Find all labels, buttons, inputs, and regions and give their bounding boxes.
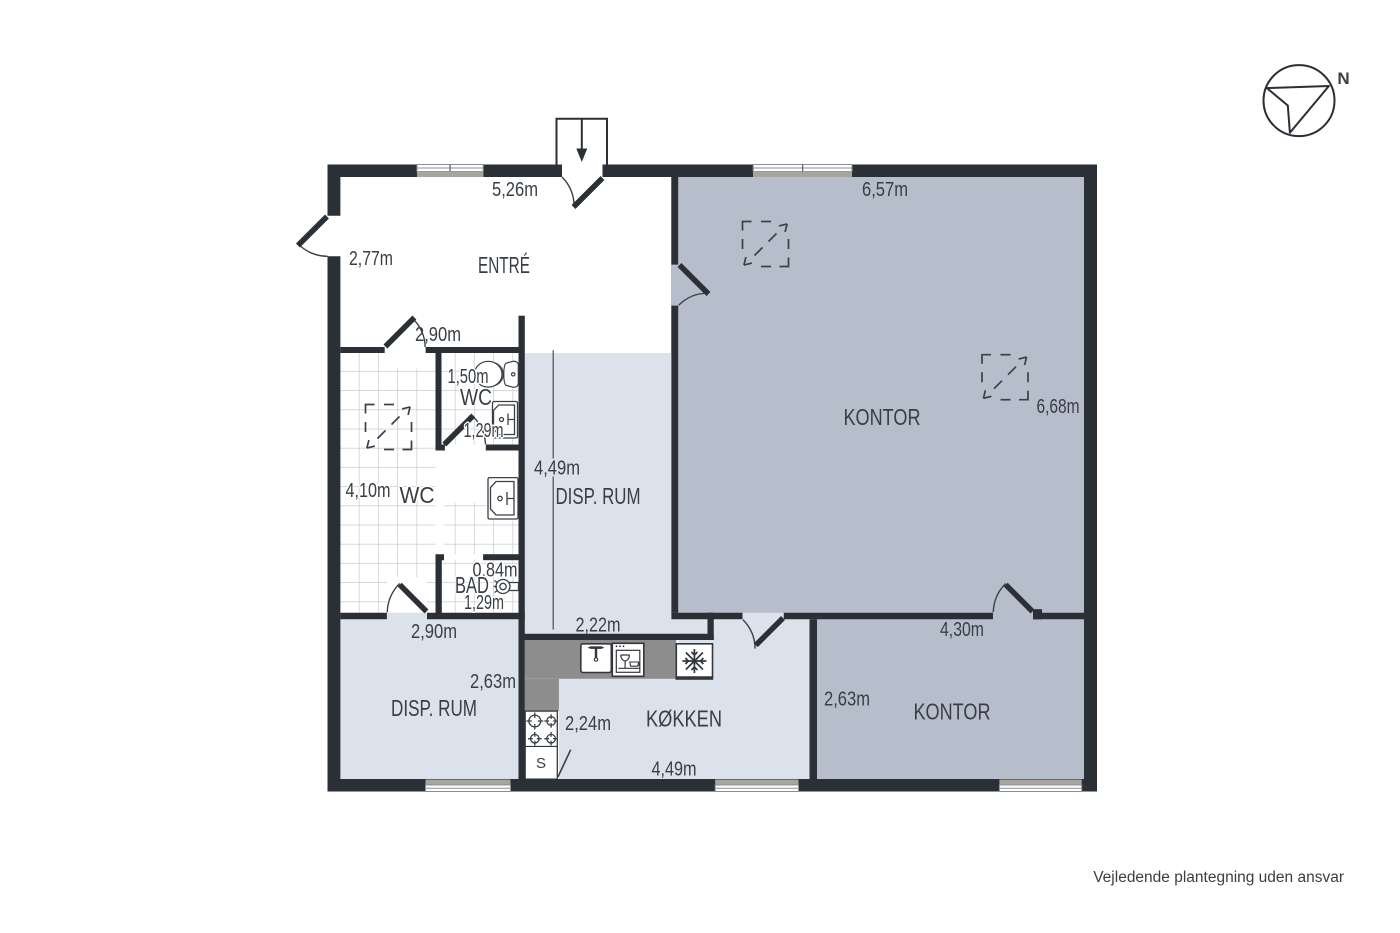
svg-text:2,22m: 2,22m	[576, 614, 621, 637]
svg-text:1,29m: 1,29m	[464, 419, 504, 442]
svg-text:6,68m: 6,68m	[1037, 395, 1080, 418]
svg-text:KONTOR: KONTOR	[914, 699, 991, 725]
svg-text:Vejledende plantegning uden an: Vejledende plantegning uden ansvar	[1093, 869, 1344, 886]
svg-text:DISP. RUM: DISP. RUM	[556, 483, 641, 509]
svg-text:2,63m: 2,63m	[824, 688, 870, 711]
svg-text:5,26m: 5,26m	[492, 178, 538, 201]
svg-text:4,49m: 4,49m	[652, 758, 697, 781]
svg-text:2,77m: 2,77m	[349, 247, 393, 270]
svg-text:ENTRÉ: ENTRÉ	[478, 252, 530, 278]
svg-text:2,90m: 2,90m	[411, 620, 457, 643]
svg-text:KØKKEN: KØKKEN	[646, 706, 722, 732]
svg-text:4,10m: 4,10m	[346, 479, 391, 502]
svg-text:2,24m: 2,24m	[565, 712, 611, 735]
svg-text:S: S	[536, 755, 546, 772]
svg-text:4,49m: 4,49m	[534, 457, 580, 480]
svg-text:KONTOR: KONTOR	[844, 404, 921, 430]
svg-text:N: N	[1337, 69, 1349, 88]
svg-text:4,30m: 4,30m	[940, 618, 984, 641]
svg-text:DISP. RUM: DISP. RUM	[391, 695, 477, 721]
svg-text:1,29m: 1,29m	[464, 591, 504, 614]
svg-text:WC: WC	[400, 482, 435, 508]
svg-text:2,90m: 2,90m	[415, 323, 461, 346]
svg-text:2,63m: 2,63m	[470, 670, 516, 693]
svg-text:WC: WC	[460, 384, 492, 410]
svg-text:6,57m: 6,57m	[862, 178, 908, 201]
